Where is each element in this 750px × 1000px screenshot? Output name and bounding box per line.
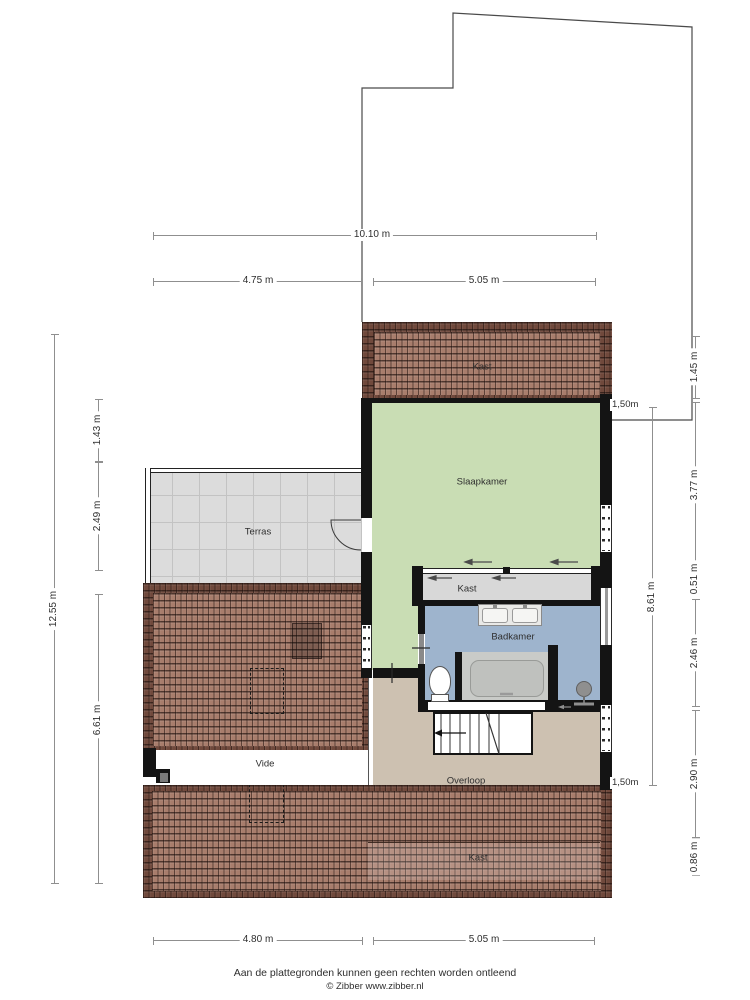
sink-left-icon bbox=[482, 608, 508, 623]
dim-label-left-seg1: 1.43 m bbox=[92, 412, 104, 449]
dim-line-left-seg3 bbox=[98, 594, 99, 884]
bathtub-icon bbox=[470, 660, 544, 697]
dim-label-bottom-left: 4.80 m bbox=[240, 934, 277, 946]
dim-label-top-right: 5.05 m bbox=[466, 275, 503, 287]
skylight-window bbox=[292, 623, 322, 659]
right-wall-2 bbox=[600, 552, 612, 588]
room-label-terras: Terras bbox=[245, 527, 271, 537]
badkamer-bottom-wall-core bbox=[428, 702, 545, 710]
dim-label-right-seg2: 3.77 m bbox=[689, 467, 701, 504]
dashed-opening-upper bbox=[250, 668, 284, 714]
right-wall-1 bbox=[600, 394, 612, 505]
slaapkamer-top-wall bbox=[362, 398, 612, 403]
terras-railing-top bbox=[145, 468, 362, 473]
tub-left-stub-wall bbox=[455, 652, 462, 700]
overloop-window bbox=[600, 705, 612, 752]
footer-credit: © Zibber www.zibber.nl bbox=[0, 981, 750, 992]
dim-label-right-seg4: 2.46 m bbox=[689, 635, 701, 672]
dim-label-left-seg3: 6.61 m bbox=[92, 702, 104, 739]
dim-label-right-seg5: 2.90 m bbox=[689, 756, 701, 793]
sliding-door-divider bbox=[503, 567, 510, 574]
annotation-150-bottom: 1,50m bbox=[610, 777, 640, 789]
room-label-vide: Vide bbox=[256, 759, 275, 769]
room-label-badkamer: Badkamer bbox=[491, 632, 534, 642]
room-label-slaapkamer: Slaapkamer bbox=[457, 477, 508, 487]
dim-label-bottom-right: 5.05 m bbox=[466, 934, 503, 946]
dim-label-left-seg2: 2.49 m bbox=[92, 498, 104, 535]
chimney-inner bbox=[160, 773, 168, 782]
toilet-base-icon bbox=[431, 694, 449, 702]
left-wall-upper bbox=[361, 398, 372, 518]
dashed-opening-lower bbox=[249, 779, 284, 823]
slaapkamer-side-window bbox=[361, 625, 372, 668]
room-label-kast-top: Kast bbox=[472, 362, 491, 372]
dim-label-top-left: 4.75 m bbox=[240, 275, 277, 287]
room-label-overloop: Overloop bbox=[447, 776, 486, 786]
room-label-kast-wardrobe: Kast bbox=[457, 584, 476, 594]
dim-label-right-seg3: 0.51 m bbox=[689, 561, 701, 598]
right-wall-3 bbox=[600, 645, 612, 705]
room-slaapkamer-walkway bbox=[372, 606, 418, 670]
dim-label-right-seg1: 1.45 m bbox=[689, 349, 701, 386]
badkamer-left-wall-upper bbox=[418, 606, 425, 634]
left-wall-lower bbox=[361, 668, 372, 678]
slaapkamer-window bbox=[600, 505, 612, 552]
badkamer-window bbox=[600, 588, 612, 645]
sink-right-icon bbox=[512, 608, 538, 623]
room-overloop-fill-left bbox=[373, 678, 418, 785]
vide-left-wall bbox=[143, 748, 156, 777]
badkamer-door-leaf bbox=[419, 634, 424, 664]
tub-right-wall bbox=[548, 645, 558, 712]
floorplan-canvas: Kast Slaapkamer Terras Kast Badkamer Vid… bbox=[0, 0, 750, 1000]
annotation-150-top: 1,50m bbox=[610, 399, 640, 411]
dim-label-right-inner: 8.61 m bbox=[646, 579, 658, 616]
walkway-overloop-wall bbox=[373, 668, 418, 678]
terras-railing-left bbox=[145, 468, 151, 583]
dim-label-top-total: 10.10 m bbox=[351, 229, 393, 241]
tap-left-icon bbox=[493, 605, 497, 608]
tap-right-icon bbox=[523, 605, 527, 608]
room-label-kast-bottom: Kast bbox=[468, 853, 487, 863]
dim-label-right-seg6: 0.86 m bbox=[689, 839, 701, 876]
dim-label-left-total: 12.55 m bbox=[48, 588, 60, 630]
footer-disclaimer: Aan de plattegronden kunnen geen rechten… bbox=[0, 967, 750, 979]
toilet-icon bbox=[429, 666, 451, 696]
left-wall-mid bbox=[361, 552, 372, 625]
staircase bbox=[433, 712, 533, 755]
